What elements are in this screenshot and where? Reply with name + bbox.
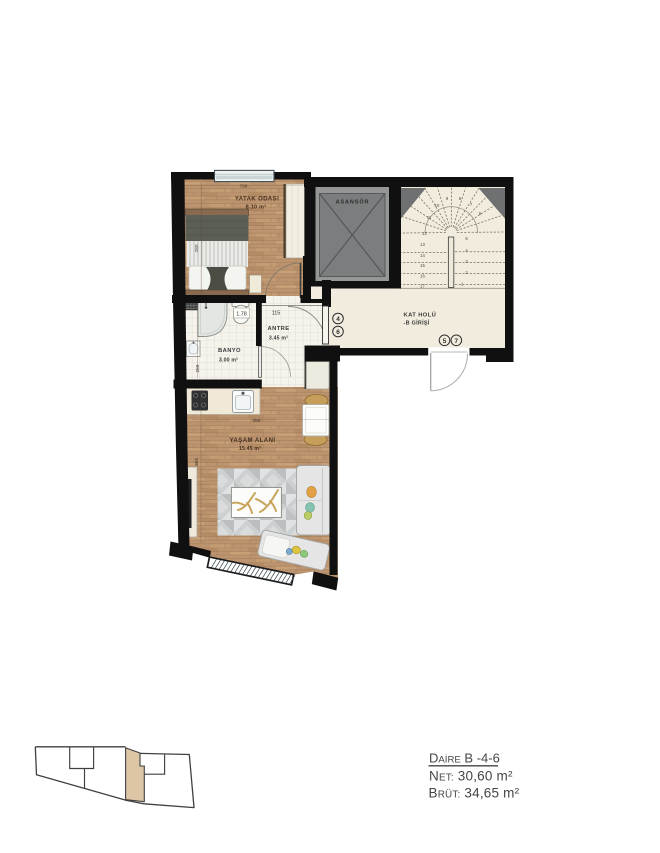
svg-text:KAT HOLÜ: KAT HOLÜ [404,312,437,319]
svg-text:8.10 m²: 8.10 m² [246,205,267,211]
svg-text:YATAK ODASI: YATAK ODASI [235,197,279,203]
svg-text:5: 5 [443,338,447,345]
svg-text:YAŞAM ALANI: YAŞAM ALANI [230,437,276,444]
svg-text:10: 10 [435,203,440,208]
svg-text:3.00 m²: 3.00 m² [219,358,238,364]
svg-text:6: 6 [336,329,340,336]
svg-text:11: 11 [427,215,432,220]
svg-text:4: 4 [336,316,340,323]
svg-text:7: 7 [455,338,459,345]
svg-text:15: 15 [420,263,425,268]
svg-text:3.45 m²: 3.45 m² [269,336,288,342]
svg-text:ANTRE: ANTRE [268,326,290,332]
svg-text:13: 13 [420,242,425,247]
svg-text:115: 115 [272,310,281,316]
svg-text:12: 12 [422,231,427,236]
svg-text:-B GİRİŞİ: -B GİRİŞİ [404,320,430,327]
svg-text:269: 269 [195,364,201,372]
svg-text:280: 280 [194,244,200,252]
svg-text:BANYO: BANYO [218,348,241,354]
svg-text:15.45 m²: 15.45 m² [239,446,261,452]
svg-text:ASANSÖR: ASANSÖR [336,199,370,206]
svg-text:16: 16 [420,274,425,279]
svg-text:798: 798 [239,183,247,189]
svg-text:365: 365 [194,458,200,466]
svg-text:14: 14 [420,253,425,258]
svg-text:1.78: 1.78 [236,312,247,318]
svg-text:17: 17 [420,284,425,289]
svg-text:358: 358 [252,418,260,424]
